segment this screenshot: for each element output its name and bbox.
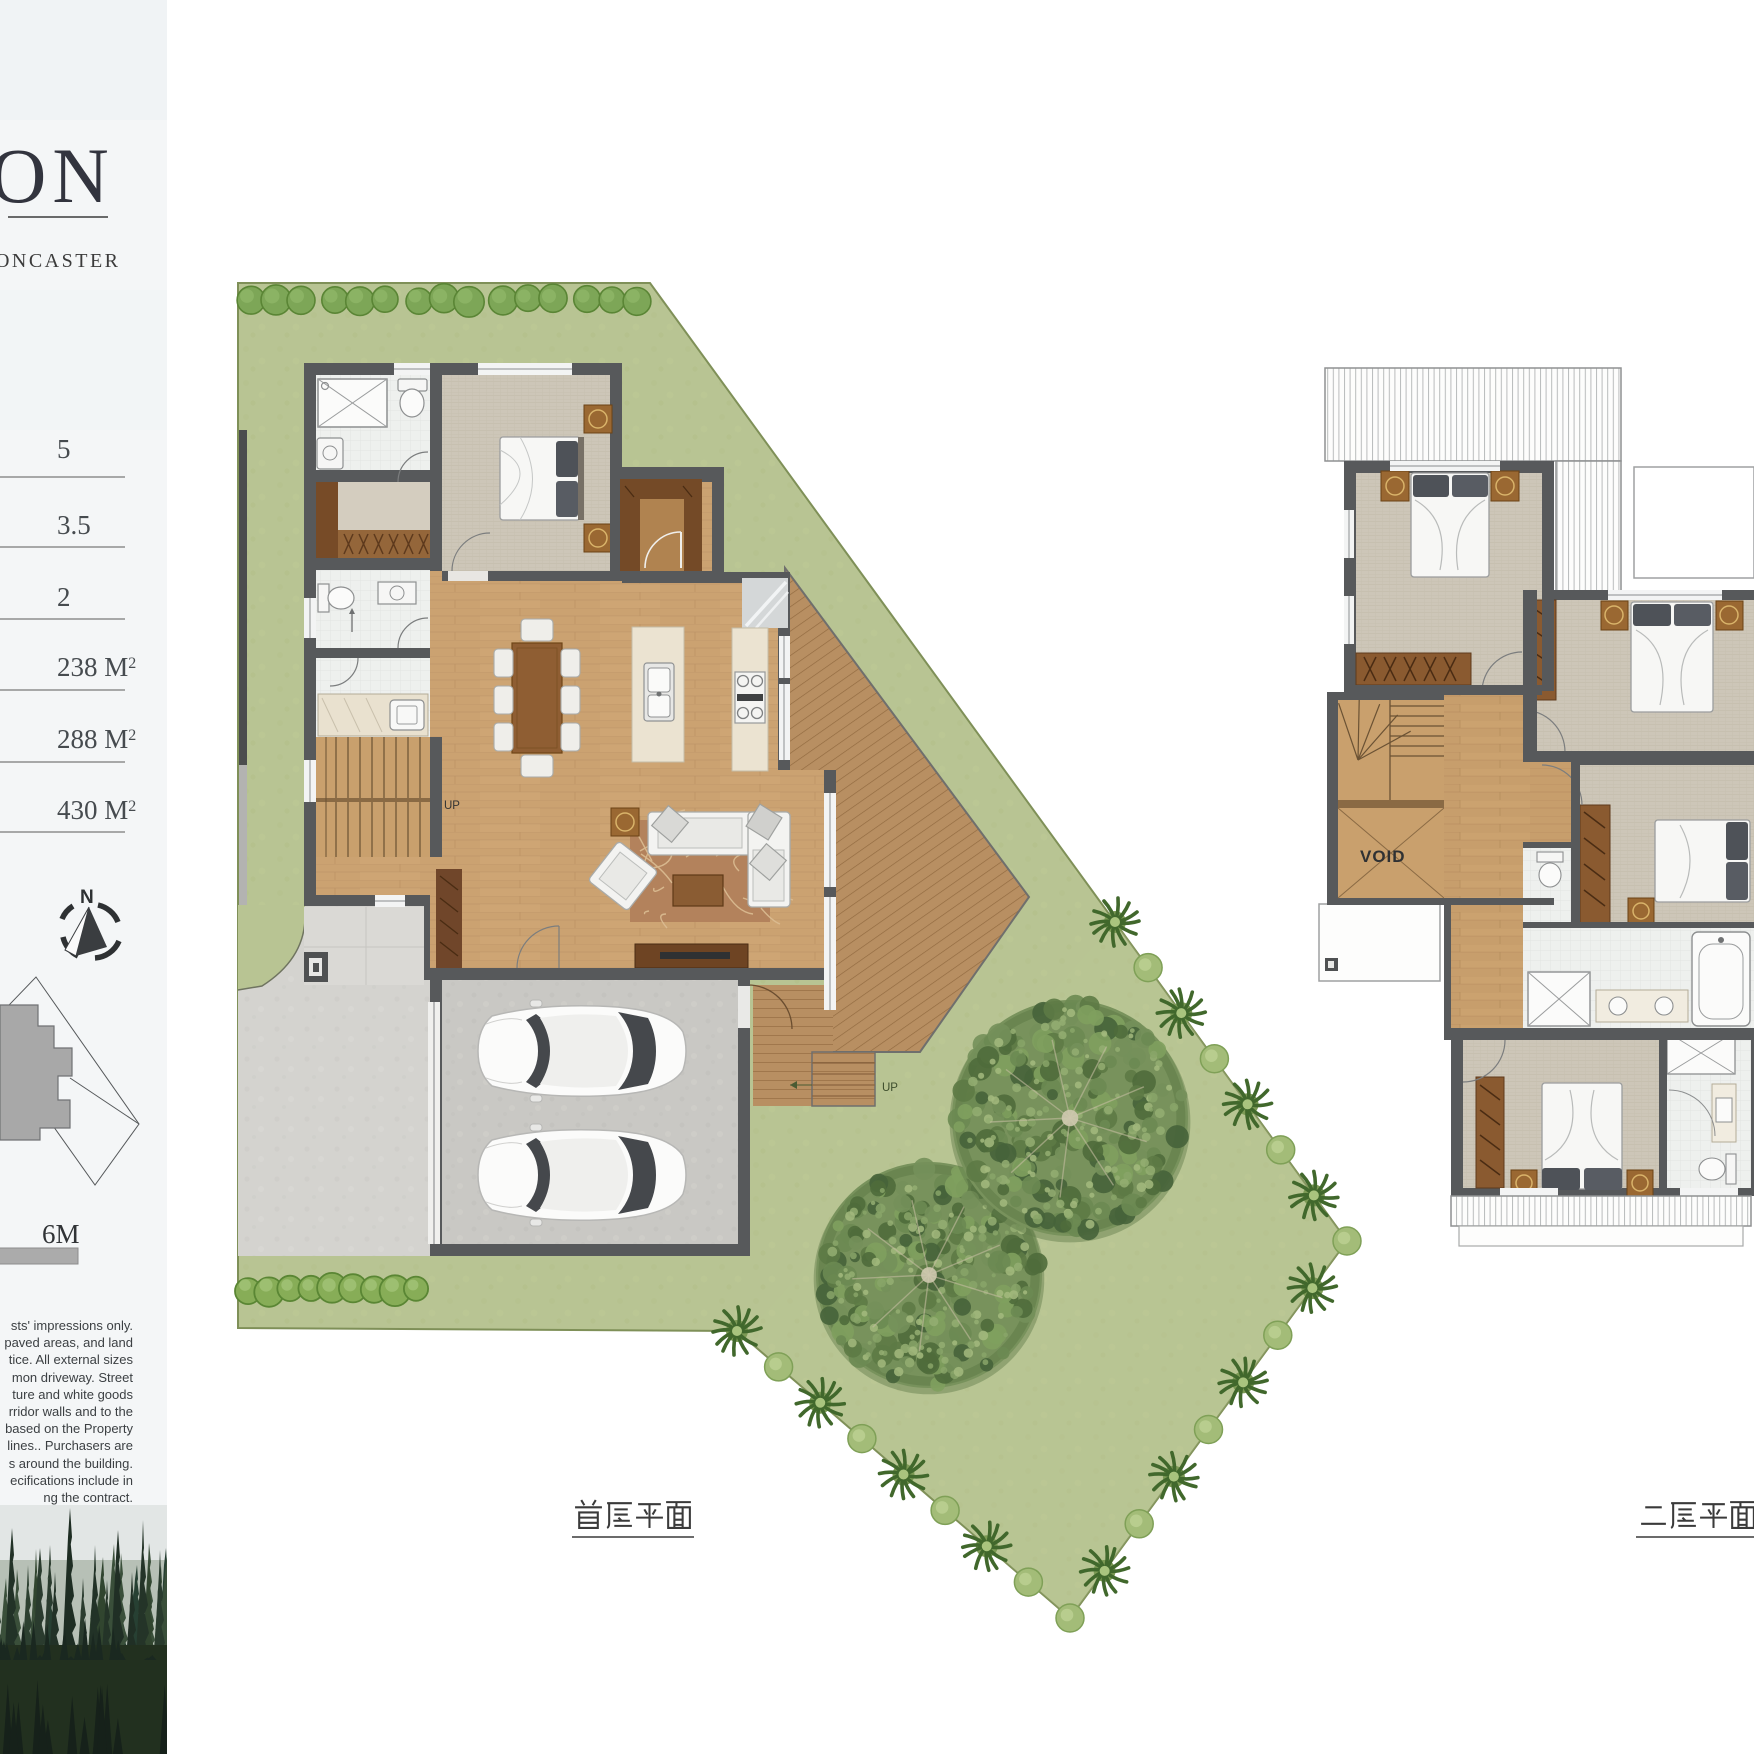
svg-text:2: 2 <box>57 582 71 612</box>
svg-text:ture and white goods: ture and white goods <box>12 1387 133 1402</box>
svg-text:s around the building.: s around the building. <box>9 1456 133 1471</box>
svg-text:N: N <box>80 887 94 908</box>
svg-text:tice. All external sizes: tice. All external sizes <box>9 1352 134 1367</box>
svg-text:288 M2: 288 M2 <box>57 724 136 754</box>
svg-text:rridor walls and to the: rridor walls and to the <box>9 1404 133 1419</box>
svg-text:based on the Property: based on the Property <box>5 1421 133 1436</box>
svg-text:VOID: VOID <box>1360 847 1406 866</box>
svg-text:430 M2: 430 M2 <box>57 795 136 825</box>
svg-text:6M: 6M <box>42 1219 80 1249</box>
svg-text:238 M2: 238 M2 <box>57 652 136 682</box>
svg-text:sts' impressions only.: sts' impressions only. <box>11 1318 133 1333</box>
svg-text:mon driveway. Street: mon driveway. Street <box>12 1370 134 1385</box>
svg-text:UP: UP <box>444 800 460 812</box>
svg-text:5: 5 <box>57 434 71 464</box>
svg-text:DONCASTER: DONCASTER <box>0 250 121 272</box>
svg-text:ON: ON <box>0 132 115 219</box>
svg-text:ecifications include in: ecifications include in <box>10 1473 133 1488</box>
svg-text:UP: UP <box>882 1082 898 1094</box>
svg-text:3.5: 3.5 <box>57 510 91 540</box>
svg-text:lines.. Purchasers are: lines.. Purchasers are <box>7 1438 133 1453</box>
svg-text:paved areas, and land: paved areas, and land <box>4 1335 133 1350</box>
svg-text:ng the contract.: ng the contract. <box>43 1490 133 1505</box>
